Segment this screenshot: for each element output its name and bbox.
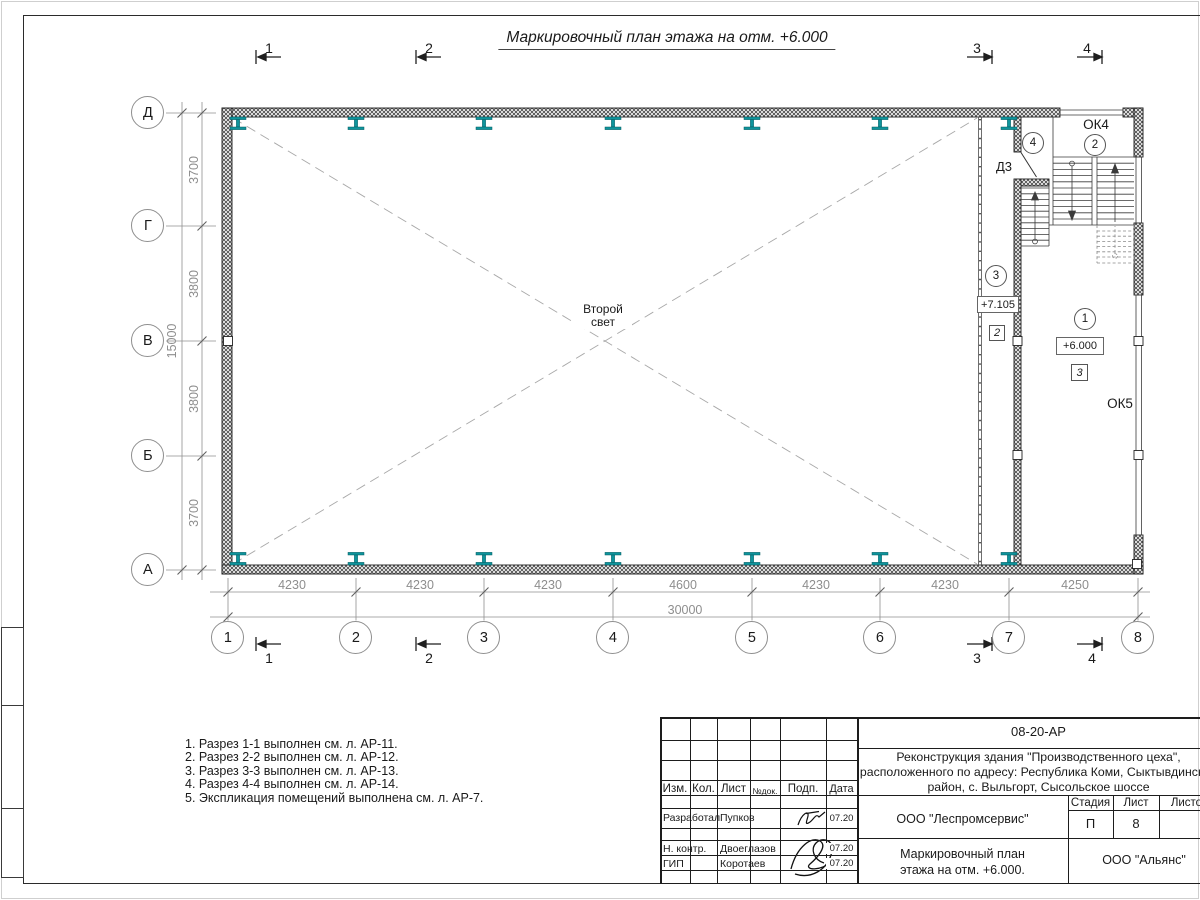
dim-row-2: 3800 <box>187 270 201 298</box>
axis-row-label: Б <box>143 448 153 464</box>
axis-row-label: А <box>143 562 153 578</box>
note-line: 3. Разрез 3-3 выполнен см. л. АР-13. <box>185 765 483 778</box>
window-ok5-label: ОК5 <box>1107 396 1133 411</box>
dim-col-7: 4250 <box>1061 578 1089 592</box>
drawing-title-2: этажа на отм. +6.000. <box>857 863 1068 877</box>
note-line: 2. Разрез 2-2 выполнен см. л. АР-12. <box>185 751 483 764</box>
project-line-1: Реконструкция здания "Производственного … <box>857 750 1200 764</box>
axis-col-label: 1 <box>224 630 232 646</box>
elevation-corridor: +7.105 <box>977 296 1019 313</box>
signature-pupkov-icon <box>798 812 825 826</box>
doc-code: 08-20-АР <box>857 724 1200 739</box>
door-leaf <box>1021 153 1037 178</box>
date-ncontrol: 07.20 <box>826 843 857 854</box>
col-header-ndoc: №док. <box>750 786 780 796</box>
section-4-top: 4 <box>1083 40 1091 56</box>
node-ref-3: 3 <box>1071 364 1088 381</box>
dim-row-1: 3700 <box>187 156 201 184</box>
room-number-2: 2 <box>1084 134 1106 156</box>
col-header-podp: Подп. <box>780 783 826 795</box>
role-gip: ГИП <box>663 858 719 870</box>
dim-col-1: 4230 <box>278 578 306 592</box>
room-number-text: 3 <box>993 270 999 282</box>
dim-col-4: 4600 <box>669 578 697 592</box>
second-light-label: Второй свет <box>574 303 632 329</box>
section-1-top: 1 <box>265 40 273 56</box>
role-developer: Разработал <box>663 812 719 824</box>
sheet-label: Лист <box>1113 797 1159 809</box>
dimension-ticks <box>178 109 1143 622</box>
dim-col-6: 4230 <box>931 578 959 592</box>
section-3-top: 3 <box>973 40 981 56</box>
col-header-list: Лист <box>717 783 750 795</box>
drawing-title-1: Маркировочный план <box>857 847 1068 861</box>
axis-col-label: 5 <box>748 630 756 646</box>
room-number-1: 1 <box>1074 308 1096 330</box>
date-developer: 07.20 <box>826 813 857 824</box>
column-markers <box>224 337 1144 569</box>
col-header-data: Дата <box>826 783 857 795</box>
col-header-izm: Изм. <box>660 783 690 795</box>
project-line-3: район, с. Выльгорт, Сысольское шоссе <box>857 780 1200 794</box>
void-cross <box>233 118 977 564</box>
room-number-text: 2 <box>1092 139 1098 151</box>
section-1-bottom: 1 <box>265 650 273 666</box>
axis-col-label: 8 <box>1134 630 1142 646</box>
customer-name: ООО "Альянс" <box>1068 853 1200 867</box>
stage-label: Стадия <box>1068 797 1113 809</box>
steel-columns <box>230 117 1017 565</box>
dim-col-2: 4230 <box>406 578 434 592</box>
door-d3-label: Д3 <box>996 159 1012 174</box>
sheets-label: Листов <box>1159 797 1200 809</box>
window-ok4-label: ОК4 <box>1083 117 1109 132</box>
drawing-sheet: Маркировочный план этажа на отм. +6.000 … <box>0 0 1200 900</box>
role-ncontrol: Н. контр. <box>663 843 719 855</box>
dim-col-3: 4230 <box>534 578 562 592</box>
section-3-bottom: 3 <box>973 650 981 666</box>
note-line: 5. Экспликация помещений выполнена см. л… <box>185 792 483 805</box>
axis-col-label: 2 <box>352 630 360 646</box>
name-ncontrol: Двоеглазов <box>720 843 782 855</box>
axis-col-label: 3 <box>480 630 488 646</box>
section-arrows <box>256 50 1102 651</box>
room-number-text: 1 <box>1082 313 1088 325</box>
dim-col-5: 4230 <box>802 578 830 592</box>
note-line: 1. Разрез 1-1 выполнен см. л. АР-11. <box>185 738 483 751</box>
dim-row-total: 15000 <box>165 324 179 359</box>
name-developer: Пупков <box>720 812 780 824</box>
partition-wall <box>978 117 981 565</box>
name-gip: Коротаев <box>720 858 782 870</box>
date-gip: 07.20 <box>826 858 857 869</box>
section-2-top: 2 <box>425 40 433 56</box>
project-line-2: расположенного по адресу: Республика Ком… <box>857 765 1200 779</box>
axis-row-label: Д <box>143 105 153 121</box>
stage-value: П <box>1068 816 1113 831</box>
grid-dimension-lines <box>166 102 1150 621</box>
notes-block: 1. Разрез 1-1 выполнен см. л. АР-11. 2. … <box>185 738 483 805</box>
windows <box>1060 108 1143 535</box>
walls <box>222 108 1143 574</box>
room-number-4: 4 <box>1022 132 1044 154</box>
node-ref-2: 2 <box>989 325 1005 341</box>
section-4-bottom: 4 <box>1088 650 1096 666</box>
elevation-main: +6.000 <box>1056 337 1104 355</box>
axis-row-label: Г <box>144 218 152 234</box>
sheet-value: 8 <box>1113 816 1159 831</box>
stairs-dashed-flight <box>1097 225 1134 263</box>
dim-row-4: 3700 <box>187 499 201 527</box>
axis-col-label: 7 <box>1005 630 1013 646</box>
axis-row-label: В <box>143 333 153 349</box>
room-number-3: 3 <box>985 265 1007 287</box>
axis-col-label: 6 <box>876 630 884 646</box>
plan-title: Маркировочный план этажа на отм. +6.000 <box>498 29 835 50</box>
col-header-kol: Кол. <box>690 783 717 795</box>
dim-col-total: 30000 <box>668 603 703 617</box>
room-number-text: 4 <box>1030 137 1036 149</box>
axis-col-label: 4 <box>609 630 617 646</box>
dim-row-3: 3800 <box>187 385 201 413</box>
section-2-bottom: 2 <box>425 650 433 666</box>
note-line: 4. Разрез 4-4 выполнен см. л. АР-14. <box>185 778 483 791</box>
org-name: ООО "Леспромсервис" <box>857 812 1068 826</box>
